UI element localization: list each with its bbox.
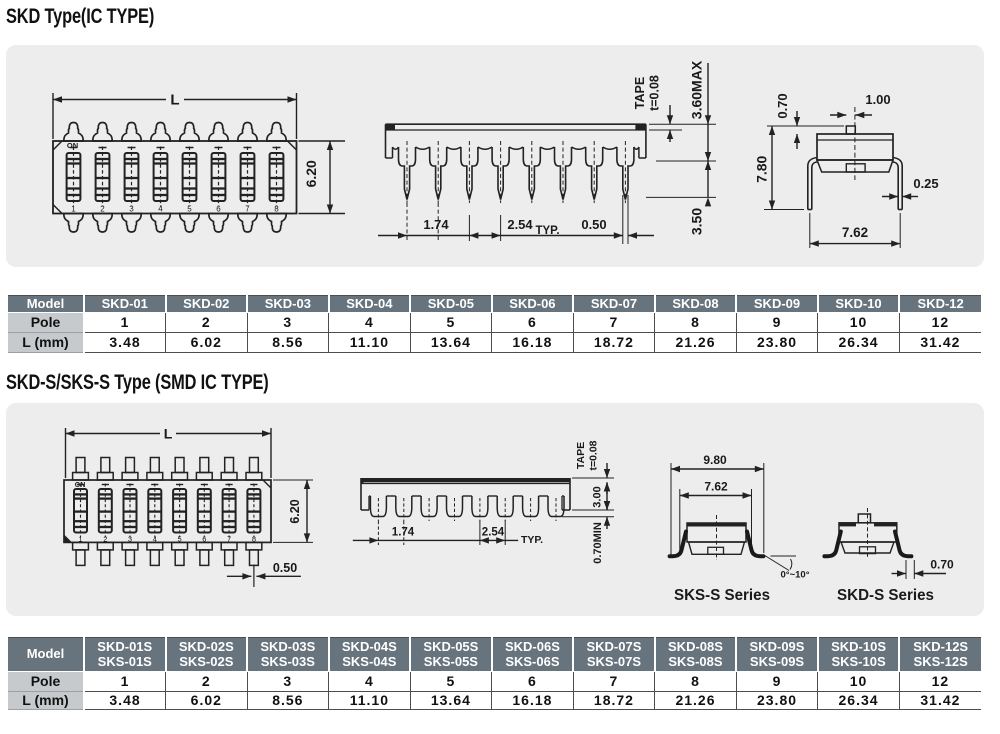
- svg-text:1.74: 1.74: [392, 527, 415, 539]
- svg-text:7: 7: [227, 535, 231, 544]
- svg-text:5: 5: [187, 205, 192, 214]
- svg-text:6.20: 6.20: [303, 160, 319, 187]
- svg-text:2: 2: [100, 205, 105, 214]
- svg-text:3.50: 3.50: [689, 208, 705, 235]
- svg-text:7.62: 7.62: [842, 225, 868, 240]
- svg-text:TAPE: TAPE: [575, 442, 587, 469]
- svg-text:t=0.08: t=0.08: [588, 440, 600, 470]
- svg-text:7.62: 7.62: [704, 480, 728, 494]
- svg-text:1.74: 1.74: [423, 217, 449, 232]
- svg-text:0.50: 0.50: [273, 561, 297, 575]
- svg-text:7: 7: [245, 205, 250, 214]
- svg-text:SKD-S Series: SKD-S Series: [837, 587, 934, 604]
- svg-text:0°~10°: 0°~10°: [781, 570, 810, 581]
- svg-text:5: 5: [178, 535, 182, 544]
- svg-text:0.25: 0.25: [913, 176, 938, 191]
- svg-text:2: 2: [103, 535, 107, 544]
- svg-text:L: L: [164, 426, 173, 442]
- svg-text:6.20: 6.20: [288, 499, 302, 523]
- svg-text:TYP.: TYP.: [521, 534, 543, 546]
- svg-text:1: 1: [71, 205, 76, 214]
- svg-text:3: 3: [128, 535, 132, 544]
- svg-text:8: 8: [274, 205, 279, 214]
- svg-text:0.70MIN: 0.70MIN: [592, 522, 604, 564]
- svg-text:3.60MAX: 3.60MAX: [689, 60, 705, 119]
- svg-text:9.80: 9.80: [703, 453, 727, 467]
- svg-text:L: L: [170, 92, 179, 109]
- svg-text:TAPE: TAPE: [633, 77, 647, 109]
- svg-text:3: 3: [129, 205, 134, 214]
- svg-text:3.00: 3.00: [592, 486, 604, 507]
- svg-text:2.54: 2.54: [482, 527, 505, 539]
- svg-text:7.80: 7.80: [754, 155, 770, 182]
- svg-text:4: 4: [153, 535, 157, 544]
- svg-text:0.70: 0.70: [775, 93, 790, 118]
- svg-text:0.70: 0.70: [930, 558, 954, 572]
- svg-text:ON: ON: [67, 141, 78, 150]
- svg-text:t=0.08: t=0.08: [648, 75, 662, 111]
- svg-text:6: 6: [202, 535, 206, 544]
- svg-text:8: 8: [252, 535, 256, 544]
- svg-text:1: 1: [78, 535, 82, 544]
- svg-text:2.54: 2.54: [507, 217, 533, 232]
- svg-text:0.50: 0.50: [581, 217, 606, 232]
- svg-text:1.00: 1.00: [865, 92, 890, 107]
- svg-text:4: 4: [158, 205, 163, 214]
- svg-text:SKS-S Series: SKS-S Series: [674, 587, 770, 604]
- svg-text:TYP.: TYP.: [535, 225, 559, 237]
- svg-text:6: 6: [216, 205, 221, 214]
